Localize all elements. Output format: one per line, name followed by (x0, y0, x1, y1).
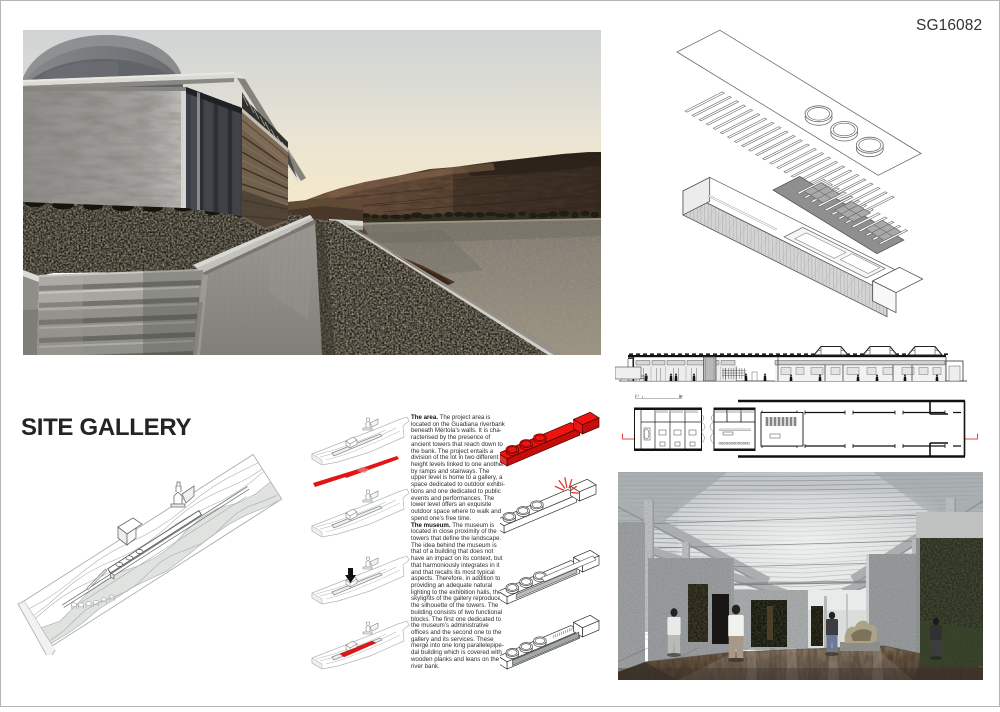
svg-text:5m: 5m (679, 394, 684, 398)
svg-text:0 1: 0 1 (635, 394, 639, 398)
